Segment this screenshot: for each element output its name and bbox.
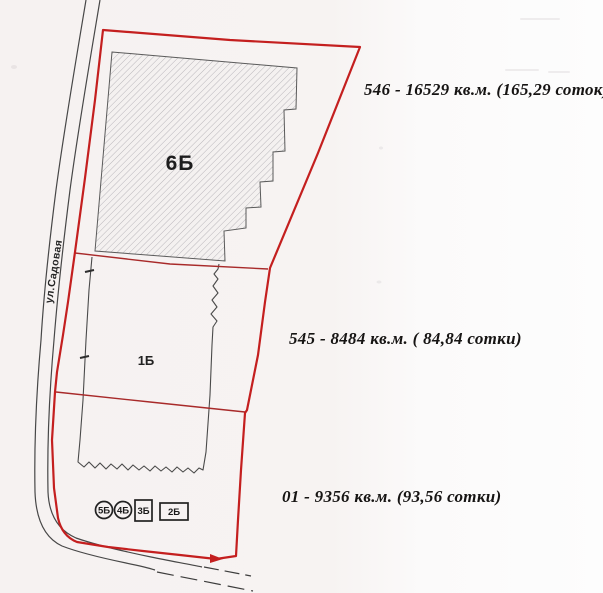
marker-5b-label: 5Б — [98, 506, 110, 517]
marker-3b-label: 3Б — [137, 506, 149, 517]
road-dashed-edge-inner — [204, 567, 251, 576]
road-dashed-edge-outer — [157, 572, 253, 591]
plot-6b-label: 6Б — [166, 152, 195, 175]
plot-6b-hatch — [95, 52, 297, 261]
boundary-arrow — [210, 554, 223, 563]
area-label-01: 01 - 9356 кв.м. (93,56 сотки) — [282, 487, 501, 506]
marker-row: 5Б 4Б 3Б 2Б — [96, 500, 189, 521]
cadastral-plan-canvas: 6Б 1Б ул.Садовая 546 - 16529 кв.м. (165,… — [0, 0, 603, 593]
divider-545-01 — [56, 392, 245, 412]
marker-4b-label: 4Б — [117, 506, 129, 517]
marker-2b-label: 2Б — [168, 507, 180, 518]
area-label-546: 546 - 16529 кв.м. (165,29 соток) — [364, 80, 603, 99]
plot-1b-tick-lower — [80, 356, 89, 358]
scan-noise — [11, 18, 570, 284]
cadastral-plan-svg: 6Б 1Б ул.Садовая 546 - 16529 кв.м. (165,… — [0, 0, 603, 593]
plot-1b-label: 1Б — [138, 353, 155, 368]
plot-1b-tick-upper — [85, 270, 94, 272]
area-label-545: 545 - 8484 кв.м. ( 84,84 сотки) — [289, 329, 522, 348]
